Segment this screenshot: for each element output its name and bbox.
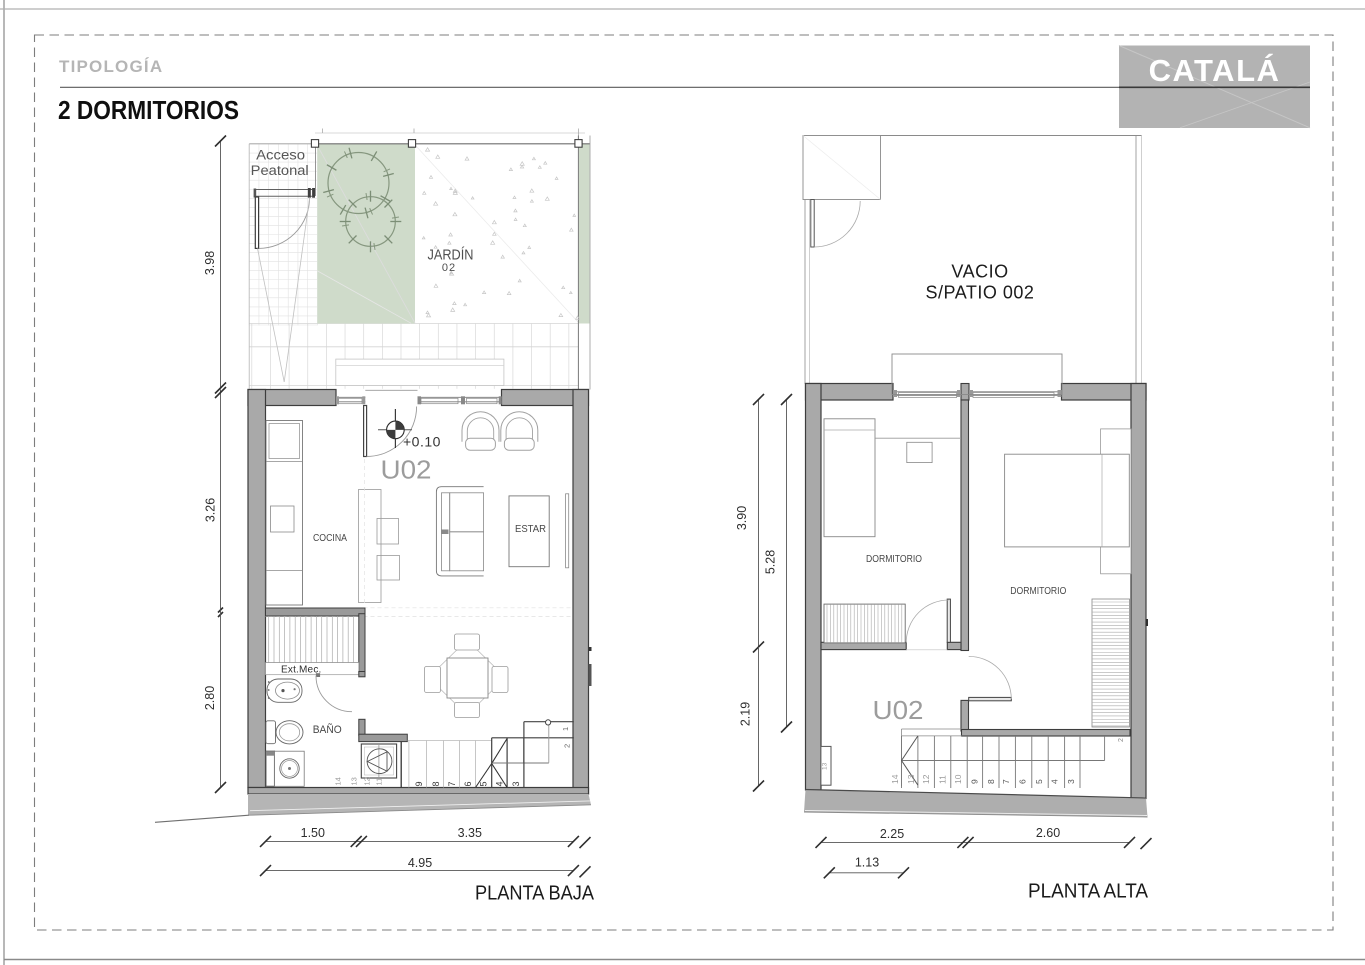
svg-text:1: 1 — [561, 727, 570, 731]
svg-text:COCINA: COCINA — [313, 532, 347, 544]
svg-text:BAÑO: BAÑO — [313, 723, 342, 736]
svg-text:3.26: 3.26 — [204, 498, 218, 522]
svg-text:DORMITORIO: DORMITORIO — [866, 553, 922, 565]
svg-text:ESTAR: ESTAR — [515, 523, 546, 535]
svg-text:3: 3 — [1066, 779, 1076, 784]
svg-text:8: 8 — [986, 779, 996, 784]
svg-text:7: 7 — [1001, 779, 1011, 784]
svg-text:14: 14 — [334, 777, 343, 785]
svg-text:12: 12 — [363, 777, 372, 785]
svg-text:3.90: 3.90 — [735, 506, 749, 530]
svg-text:2.60: 2.60 — [1036, 826, 1060, 840]
svg-text:Ext.Mec.: Ext.Mec. — [281, 664, 322, 675]
svg-text:2.80: 2.80 — [203, 686, 217, 710]
svg-text:3.98: 3.98 — [203, 251, 217, 275]
svg-text:5.28: 5.28 — [764, 550, 778, 574]
svg-text:10: 10 — [953, 774, 963, 784]
svg-text:5: 5 — [479, 781, 489, 786]
svg-text:TIPOLOGÍA: TIPOLOGÍA — [59, 57, 163, 76]
svg-text:Acceso: Acceso — [256, 147, 305, 162]
svg-text:7: 7 — [447, 781, 457, 786]
svg-text:U02: U02 — [873, 695, 924, 725]
svg-text:4.95: 4.95 — [408, 856, 432, 870]
svg-text:1.50: 1.50 — [301, 826, 325, 840]
svg-text:2: 2 — [1118, 738, 1125, 742]
svg-text:JARDÍN: JARDÍN — [428, 247, 474, 264]
svg-text:5: 5 — [1034, 779, 1044, 784]
svg-text:3.35: 3.35 — [458, 826, 482, 840]
svg-text:11: 11 — [375, 778, 384, 786]
svg-text:PLANTA ALTA: PLANTA ALTA — [1028, 881, 1149, 903]
svg-text:8: 8 — [431, 781, 441, 786]
svg-text:Peatonal: Peatonal — [251, 163, 309, 178]
svg-text:CATALÁ: CATALÁ — [1149, 53, 1281, 88]
svg-text:4: 4 — [495, 781, 505, 786]
svg-text:3: 3 — [511, 781, 521, 786]
svg-text:6: 6 — [463, 781, 473, 786]
svg-text:13: 13 — [350, 777, 359, 785]
svg-text:9: 9 — [414, 781, 424, 786]
svg-text:9: 9 — [969, 779, 979, 784]
svg-text:2 DORMITORIOS: 2 DORMITORIOS — [58, 97, 239, 125]
svg-text:1.13: 1.13 — [855, 856, 879, 870]
svg-text:13: 13 — [906, 774, 916, 784]
svg-text:13: 13 — [822, 762, 829, 770]
svg-text:S/PATIO 002: S/PATIO 002 — [926, 283, 1035, 303]
svg-text:2.19: 2.19 — [738, 702, 752, 726]
svg-text:PLANTA BAJA: PLANTA BAJA — [475, 883, 595, 905]
svg-text:12: 12 — [921, 774, 931, 784]
svg-text:2.25: 2.25 — [880, 827, 904, 841]
svg-text:4: 4 — [1049, 779, 1059, 784]
svg-text:2: 2 — [562, 744, 571, 748]
svg-text:14: 14 — [890, 774, 900, 784]
svg-text:VACIO: VACIO — [951, 262, 1008, 282]
svg-text:+0.10: +0.10 — [403, 434, 441, 450]
svg-text:02: 02 — [442, 262, 456, 274]
svg-text:6: 6 — [1018, 779, 1028, 784]
svg-text:U02: U02 — [381, 455, 432, 485]
svg-text:11: 11 — [938, 775, 948, 784]
svg-text:DORMITORIO: DORMITORIO — [1010, 585, 1066, 597]
